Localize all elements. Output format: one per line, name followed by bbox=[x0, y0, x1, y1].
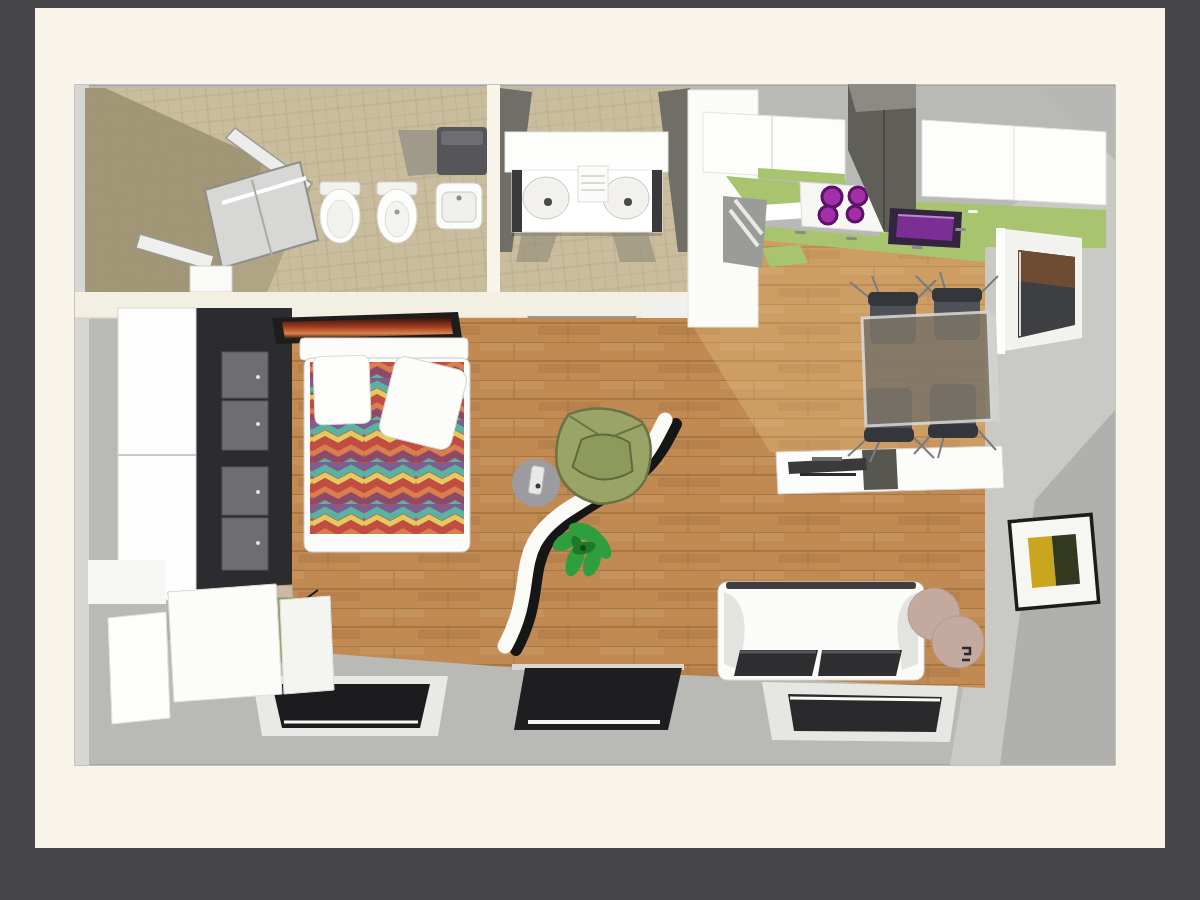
vanity-sink-left bbox=[523, 177, 569, 219]
shower-room bbox=[500, 88, 690, 292]
burner-4 bbox=[847, 206, 863, 222]
toilet-seat bbox=[327, 200, 353, 238]
vanity-shelf bbox=[578, 166, 608, 202]
framed-picture bbox=[1009, 515, 1098, 610]
pouf bbox=[932, 616, 984, 668]
vanity-sink-right bbox=[603, 177, 649, 219]
tv-stand bbox=[800, 473, 856, 476]
tv-sideboard bbox=[776, 446, 1004, 494]
door-panel bbox=[168, 584, 282, 702]
round-side-table bbox=[512, 459, 560, 507]
side-table-dot bbox=[536, 484, 541, 489]
burner-3 bbox=[819, 206, 837, 224]
kitchen-window bbox=[996, 228, 1082, 354]
bidet bbox=[377, 182, 417, 243]
sofa-back-edge bbox=[726, 582, 916, 589]
sink-basin bbox=[896, 215, 954, 241]
toilet bbox=[320, 182, 360, 243]
floor-plan-render bbox=[0, 0, 1200, 900]
apartment-scene bbox=[0, 0, 1200, 900]
glass-dining-table bbox=[862, 312, 992, 426]
bidet-basin bbox=[385, 201, 409, 237]
wall-basin bbox=[436, 183, 482, 229]
center-glass-panel bbox=[512, 664, 684, 730]
sink-drain-right bbox=[624, 198, 632, 206]
vanity-side-right bbox=[652, 170, 662, 232]
wall-divider-1 bbox=[487, 85, 500, 318]
right-window bbox=[762, 682, 958, 742]
seat-cushion-left bbox=[734, 650, 818, 676]
vanity-side-left bbox=[512, 170, 522, 232]
hood-top-facet bbox=[848, 84, 916, 112]
sink-drain-left bbox=[544, 198, 552, 206]
washing-machine bbox=[398, 127, 487, 176]
shower-tray bbox=[190, 266, 232, 292]
burner-2 bbox=[849, 187, 867, 205]
green-floor-mat bbox=[762, 245, 808, 267]
burner-1 bbox=[822, 187, 842, 207]
upper-cabinets-right-b bbox=[1014, 126, 1106, 205]
washer-top bbox=[441, 131, 483, 145]
door-panel bbox=[108, 612, 170, 724]
double-basin-vanity bbox=[505, 132, 668, 232]
tv-detail bbox=[812, 457, 842, 461]
plant-center bbox=[580, 545, 586, 551]
right-window-line bbox=[790, 698, 940, 700]
picture-art-green bbox=[1052, 534, 1080, 586]
bathroom-main bbox=[85, 88, 487, 292]
bidet-drain bbox=[395, 210, 400, 215]
upper-cabinets-right-a bbox=[922, 120, 1014, 200]
purple-sink bbox=[888, 208, 962, 248]
seat-cushion-right bbox=[818, 650, 902, 676]
pillow bbox=[313, 355, 371, 425]
door-panel bbox=[280, 596, 334, 694]
picture-art-yellow bbox=[1028, 536, 1056, 588]
sideboard-dark-segment bbox=[862, 449, 898, 490]
corner-white-block bbox=[88, 560, 166, 604]
window-sill bbox=[996, 228, 1005, 354]
basin-tap bbox=[457, 196, 462, 201]
